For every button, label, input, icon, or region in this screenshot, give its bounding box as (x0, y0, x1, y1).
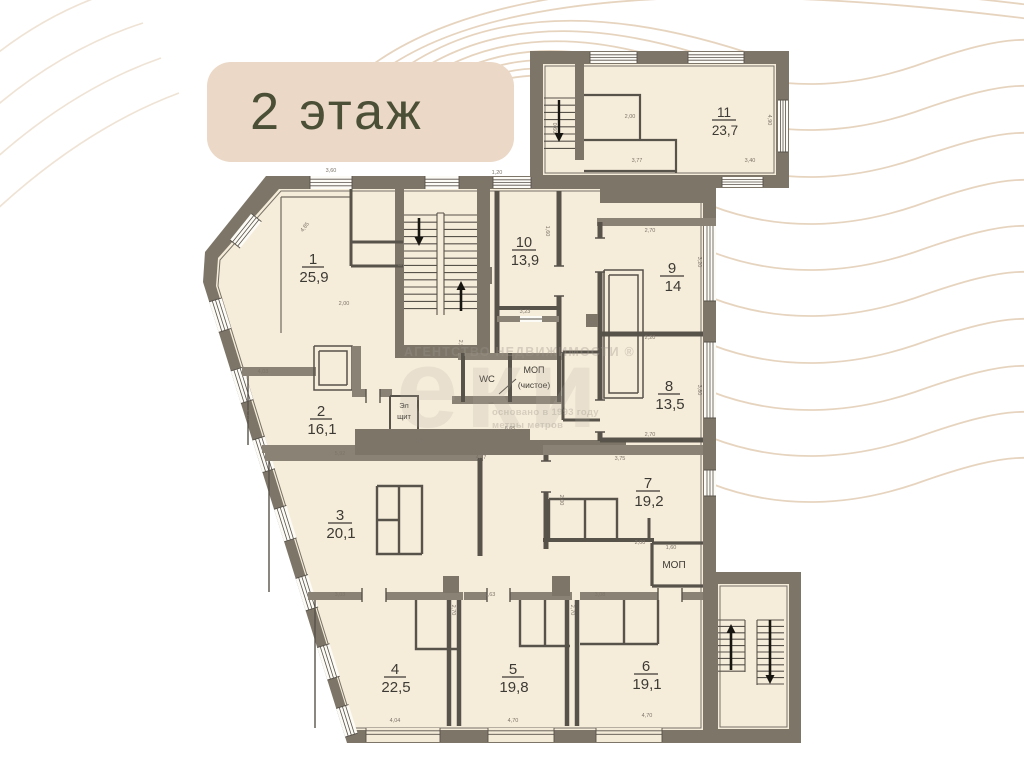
svg-text:6: 6 (642, 658, 650, 675)
svg-text:3,23: 3,23 (520, 309, 531, 315)
svg-text:4,70: 4,70 (642, 713, 653, 719)
svg-text:1,63: 1,63 (485, 592, 496, 598)
svg-text:2,00: 2,00 (635, 540, 646, 546)
svg-text:3: 3 (336, 507, 344, 524)
svg-text:4,70: 4,70 (508, 718, 519, 724)
svg-text:2,70: 2,70 (645, 228, 656, 234)
svg-text:7: 7 (644, 475, 652, 492)
svg-text:19,8: 19,8 (499, 679, 528, 696)
svg-text:3,20: 3,20 (696, 257, 702, 268)
svg-text:19,2: 19,2 (634, 493, 663, 510)
svg-text:14: 14 (665, 278, 682, 295)
svg-text:3,75: 3,75 (615, 456, 626, 462)
svg-text:4,04: 4,04 (390, 718, 401, 724)
svg-text:2 этаж: 2 этаж (250, 83, 424, 141)
svg-text:9: 9 (668, 260, 676, 277)
svg-text:22,5: 22,5 (381, 679, 410, 696)
svg-text:3,03: 3,03 (335, 592, 346, 598)
svg-text:3,08: 3,08 (595, 592, 606, 598)
svg-text:2,00: 2,00 (558, 495, 564, 506)
svg-text:5: 5 (509, 661, 517, 678)
svg-text:4,90: 4,90 (766, 115, 772, 126)
svg-text:2,00: 2,00 (339, 301, 350, 307)
svg-text:23,7: 23,7 (712, 123, 738, 138)
svg-text:МОП: МОП (662, 560, 685, 571)
svg-text:11: 11 (717, 105, 731, 120)
svg-text:4,47: 4,47 (476, 455, 487, 461)
svg-text:2,20: 2,20 (645, 335, 656, 341)
svg-text:13,9: 13,9 (511, 253, 539, 269)
svg-text:16,1: 16,1 (307, 421, 336, 438)
svg-text:2,70: 2,70 (450, 605, 456, 616)
svg-text:5,92: 5,92 (335, 451, 346, 457)
svg-text:1,60: 1,60 (544, 226, 550, 237)
svg-text:2: 2 (317, 403, 325, 420)
svg-text:4: 4 (391, 661, 399, 678)
svg-text:4,03: 4,03 (258, 369, 269, 375)
svg-text:3,60: 3,60 (326, 168, 337, 174)
svg-text:3,40: 3,40 (745, 158, 756, 164)
svg-text:еки: еки (396, 326, 604, 451)
svg-text:3,80: 3,80 (696, 385, 702, 396)
svg-text:2,53: 2,53 (396, 256, 402, 267)
svg-text:8: 8 (665, 378, 673, 395)
svg-text:25,9: 25,9 (299, 269, 328, 286)
svg-text:метры метров: метры метров (492, 420, 563, 431)
svg-text:2,70: 2,70 (645, 432, 656, 438)
svg-text:1,60: 1,60 (666, 545, 677, 551)
svg-text:2,70: 2,70 (569, 605, 575, 616)
svg-text:1,20: 1,20 (492, 170, 503, 176)
svg-text:10: 10 (516, 235, 532, 251)
svg-text:2,00: 2,00 (625, 114, 636, 120)
svg-text:3,77: 3,77 (632, 158, 643, 164)
svg-text:0,60: 0,60 (551, 123, 557, 134)
svg-text:19,1: 19,1 (632, 676, 661, 693)
svg-text:1: 1 (309, 251, 317, 268)
svg-text:основано в 1993 году: основано в 1993 году (492, 407, 599, 418)
svg-text:20,1: 20,1 (326, 525, 355, 542)
svg-text:13,5: 13,5 (655, 396, 684, 413)
